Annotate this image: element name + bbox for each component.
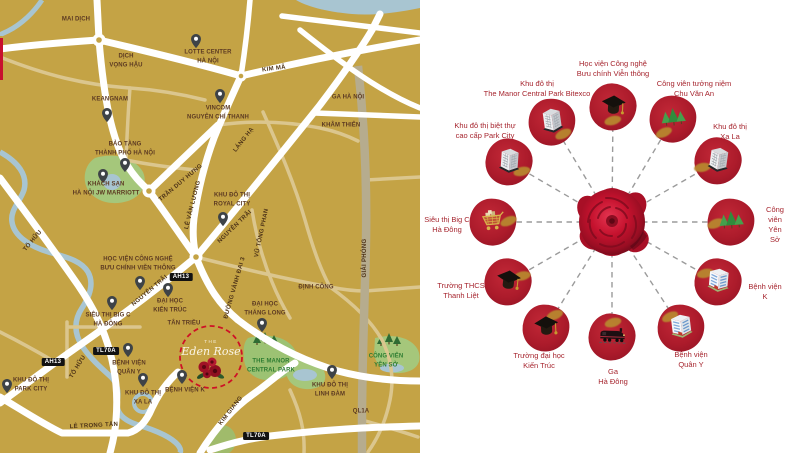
label-dich-vong-hau: DỊCH VỌNG HẬU [109, 52, 142, 69]
cart-icon [479, 208, 507, 232]
node-label-big-c: Siêu thị Big C Hà Đông [424, 215, 469, 235]
label-tan-trieu: TÂN TRIỀU [168, 320, 201, 329]
node-label-dh-kien-truc: Trường đại học Kiến Trúc [513, 351, 564, 371]
label-dh-kien-truc: ĐẠI HỌC KIẾN TRÚC [153, 297, 187, 314]
label-royal-city: KHU ĐÔ THỊ ROYAL CITY [214, 191, 251, 208]
label-manor-park: THE MANOR CENTRAL PARK [247, 357, 295, 374]
label-kham-thien: KHÂM THIÊN [322, 122, 361, 131]
badge-tl70a-2: TL70A [243, 432, 269, 440]
eden-the-text: THE [204, 339, 217, 344]
label-park-city: KHU ĐÔ THỊ PARK CITY [13, 376, 49, 393]
label-bv-quan-y: BỆNH VIỆN QUÂN Y [112, 359, 146, 376]
label-lotte-center: LOTTE CENTER HÀ NỘI [184, 48, 231, 65]
node-label-chu-van-an: Công viên tưởng niệm Chu Văn An [657, 79, 732, 99]
label-vincom: VINCOM NGUYỄN CHÍ THANH [187, 104, 249, 121]
label-ga-ha-noi: GA HÀ NỘI [332, 94, 364, 103]
train-icon [598, 327, 627, 345]
hospital-icon [706, 268, 730, 294]
label-ql1a: QL1A [353, 408, 369, 417]
node-label-xa-la: Khu đô thị Xa La [713, 122, 747, 142]
label-dh-thang-long: ĐẠI HỌC THĂNG LONG [244, 300, 285, 317]
left-edge-accent [0, 38, 3, 80]
node-label-benh-vien-k: Bệnh viện K [748, 282, 781, 302]
label-linh-dam: KHU ĐÔ THỊ LINH ĐÀM [312, 381, 348, 398]
badge-tl70a-1: TL70A [93, 347, 119, 355]
node-label-ga-ha-dong: Ga Hà Đông [598, 367, 628, 387]
park-trees-icon [658, 107, 688, 129]
eden-rose-brochure: THE Eden Rose [0, 0, 800, 453]
label-big-c: SIÊU THỊ BIG C HÀ ĐÔNG [85, 311, 130, 328]
label-bv-k: BỆNH VIỆN K [165, 387, 205, 396]
eden-name-text: Eden Rose [180, 345, 241, 358]
label-keangnam: KEANGNAM [92, 96, 128, 105]
hanoi-location-map: THE Eden Rose [0, 0, 420, 453]
node-label-yen-so: Công viên Yên Sở [763, 205, 788, 246]
node-label-thcs-thanh-liet: Trường THCS Thanh Liệt [437, 281, 484, 301]
label-hoc-vien-bcvt: HỌC VIỆN CÔNG NGHỆ BƯU CHÍNH VIỄN THÔNG [100, 255, 175, 272]
label-mai-dich: MAI DỊCH [62, 16, 90, 25]
label-dinh-cong: ĐỊNH CÔNG [298, 284, 333, 293]
rose-icon [572, 188, 653, 257]
node-label-park-city: Khu đô thị biệt thự cao cấp Park City [454, 121, 515, 141]
node-label-manor-bitexco: Khu đô thị The Manor Central Park Bitexc… [484, 79, 591, 99]
label-jw-marriott: KHÁCH SẠN HÀ NỘI JW MARRIOTT [73, 180, 140, 197]
label-bao-tang: BẢO TÀNG THÀNH PHỐ HÀ NỘI [95, 140, 155, 157]
graduation-cap-icon [494, 268, 522, 293]
hospital-icon [668, 313, 693, 340]
node-label-hoc-vien-buu-chinh: Học viện Công nghệ Bưu chính Viễn thông [577, 59, 649, 79]
badge-ah13-2: AH13 [42, 358, 65, 366]
badge-ah13-1: AH13 [170, 273, 193, 281]
graduation-cap-icon [532, 315, 559, 338]
graduation-cap-icon [600, 94, 627, 117]
node-label-benh-vien-quan-y: Bệnh viện Quân Y [674, 350, 707, 370]
road-label-giai-phong: GIẢI PHÓNG [362, 238, 368, 277]
park-trees-icon [716, 210, 745, 231]
label-xa-la: KHU ĐÔ THỊ XA LA [125, 389, 161, 406]
building-icon [497, 147, 521, 174]
building-icon [539, 106, 564, 135]
label-yen-so-park: CÔNG VIÊN YÊN SỞ [369, 352, 404, 369]
building-icon [705, 145, 730, 174]
